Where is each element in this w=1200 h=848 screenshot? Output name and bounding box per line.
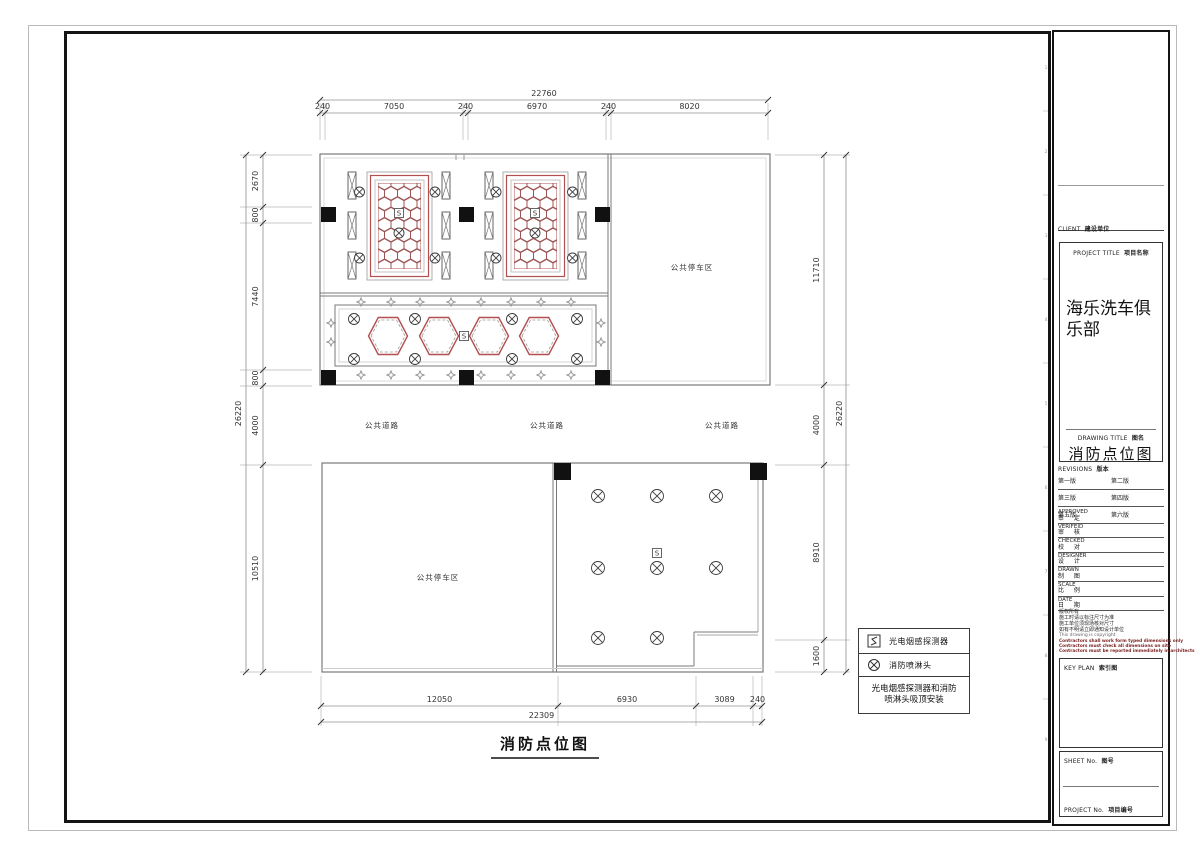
project-box: PROJECT TITLE 项目名称 海乐洗车俱乐部 DRAWING TITLE…: [1059, 242, 1163, 462]
signature-field-row: DESIGNER设 计: [1058, 553, 1164, 568]
revision-row: 第一版第二版: [1058, 473, 1164, 490]
legend-item-smoke-detector: 光电烟感探测器: [859, 629, 969, 654]
drawing-title-label: DRAWING TITLE 图名: [1060, 433, 1162, 442]
revision-row: 第三版第四版: [1058, 490, 1164, 507]
sheet-box: SHEET No. 图号 PROJECT No. 项目编号: [1059, 751, 1163, 817]
signature-field-row: CHECKED校 对: [1058, 538, 1164, 553]
project-no-label: PROJECT No. 项目编号: [1064, 805, 1162, 814]
signature-field-row: APPROVED审 定: [1058, 509, 1164, 524]
project-title-label: PROJECT TITLE 项目名称: [1060, 248, 1162, 257]
client-row: CLIENT 建设单位: [1058, 216, 1164, 231]
key-plan-label: KEY PLAN 索引图: [1064, 663, 1162, 672]
sheet-divider: [1063, 786, 1159, 787]
drawing-title-divider: [1066, 429, 1156, 430]
signature-field-row: SCALE比 例: [1058, 582, 1164, 597]
legend-label: 消防喷淋头: [889, 660, 932, 671]
signature-fields: APPROVED审 定VERIFEID审 核CHECKED校 对DESIGNER…: [1058, 509, 1164, 611]
copyright-notes: 版权所有施工时请以标注尺寸为准施工单位须现场核对尺寸如有不明请立即通知设计单位T…: [1059, 609, 1164, 654]
legend-box: 光电烟感探测器 消防喷淋头 光电烟感探测器和消防喷淋头吸顶安装: [858, 628, 970, 714]
title-block: CLIENT 建设单位 PROJECT TITLE 项目名称 海乐洗车俱乐部 D…: [1052, 30, 1170, 826]
client-value: 建设单位: [1085, 226, 1110, 233]
page: { "colors":{"wall":"#7a7a7a","red":"#b24…: [0, 0, 1200, 848]
client-label: CLIENT: [1058, 226, 1080, 233]
signature-field-row: VERIFEID审 核: [1058, 524, 1164, 539]
legend-item-sprinkler: 消防喷淋头: [859, 654, 969, 677]
revisions-label: REVISIONS 版本: [1058, 464, 1164, 473]
drawing-name: 消防点位图: [1060, 443, 1162, 464]
smoke-detector-icon: [867, 634, 881, 648]
key-plan-box: KEY PLAN 索引图: [1059, 658, 1163, 748]
legend-note: 光电烟感探测器和消防喷淋头吸顶安装: [859, 677, 969, 713]
sprinkler-icon: [867, 658, 881, 672]
legend-label: 光电烟感探测器: [889, 636, 949, 647]
title-block-divider: [1058, 185, 1164, 186]
signature-field-row: DRAWN制 图: [1058, 567, 1164, 582]
sheet-no-label: SHEET No. 图号: [1064, 756, 1162, 765]
project-name: 海乐洗车俱乐部: [1060, 299, 1162, 341]
